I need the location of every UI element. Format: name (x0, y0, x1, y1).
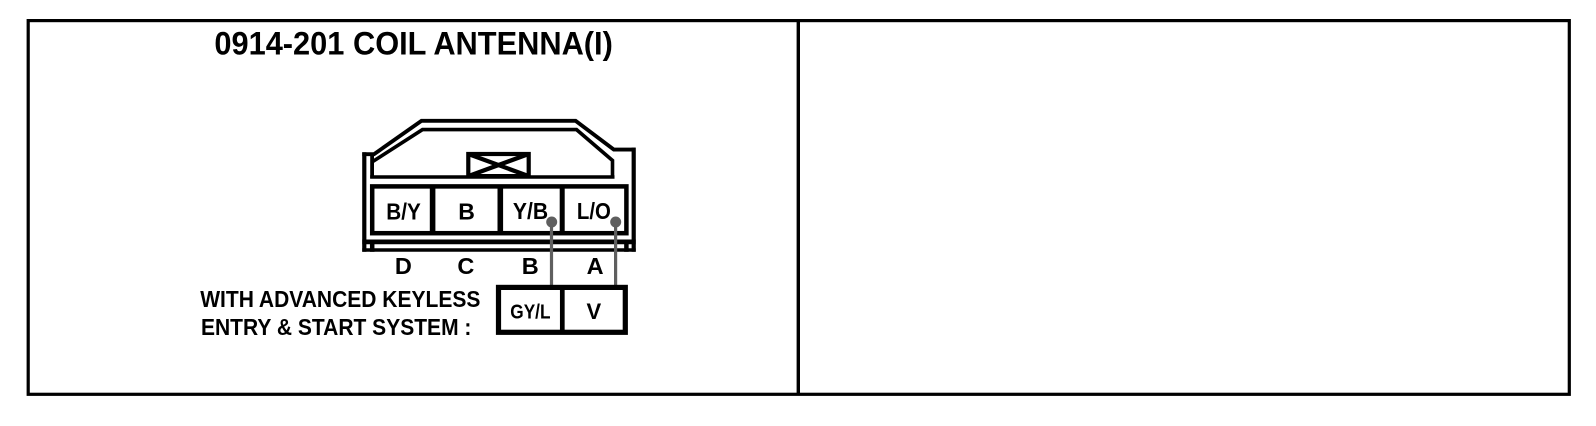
svg-text:C: C (457, 253, 474, 279)
svg-text:B/Y: B/Y (386, 198, 421, 224)
svg-text:B: B (458, 198, 475, 224)
svg-text:GY/L: GY/L (510, 301, 550, 323)
svg-text:V: V (586, 299, 601, 324)
svg-text:ENTRY & START SYSTEM :: ENTRY & START SYSTEM : (201, 314, 471, 340)
svg-text:A: A (587, 253, 604, 279)
svg-text:WITH ADVANCED KEYLESS: WITH ADVANCED KEYLESS (200, 286, 480, 312)
svg-text:D: D (395, 253, 412, 279)
svg-text:Y/B: Y/B (513, 198, 548, 224)
svg-text:B: B (522, 253, 539, 279)
svg-text:L/O: L/O (577, 198, 611, 224)
svg-text:0914-201 COIL ANTENNA(I): 0914-201 COIL ANTENNA(I) (214, 26, 613, 62)
